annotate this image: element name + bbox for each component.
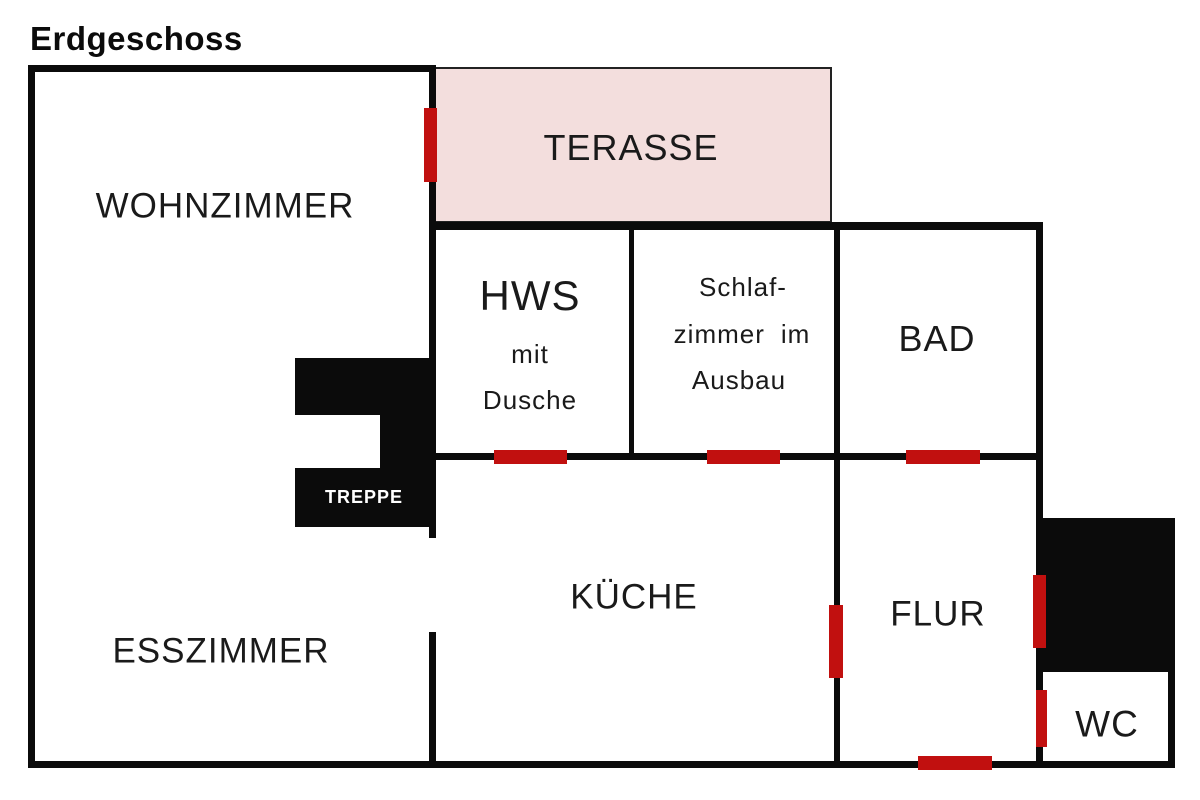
wall-hws-schlafzimmer (629, 222, 634, 460)
room-label-hws-line3: Dusche (483, 387, 577, 413)
wall-center-lower (429, 632, 436, 768)
door-entrance (918, 756, 992, 770)
wall-outer-top (28, 65, 436, 72)
room-label-wohnzimmer: WOHNZIMMER (96, 189, 355, 224)
wall-outer-right (1036, 222, 1043, 768)
room-label-schlafzimmer-line2: zimmer im (674, 321, 811, 347)
floor-plan: Erdgeschoss WOHNZIMMERTERASSEHWSmitDusch… (0, 0, 1200, 800)
room-label-terrasse: TERASSE (543, 130, 718, 166)
door-schlafzimmer (707, 450, 780, 464)
stair-block-top (295, 358, 429, 415)
room-label-schlafzimmer-line3: Ausbau (692, 367, 786, 393)
room-label-hws: HWS (480, 275, 581, 317)
room-label-bad: BAD (898, 321, 975, 357)
wall-outer-bottom (28, 761, 1175, 768)
door-hws (494, 450, 567, 464)
wall-outer-left (28, 65, 35, 768)
room-label-esszimmer: ESSZIMMER (112, 634, 329, 669)
stair-label: TREPPE (325, 488, 403, 506)
wall-row-top (429, 222, 1043, 230)
floor-title: Erdgeschoss (30, 20, 243, 58)
room-label-flur: FLUR (890, 597, 985, 632)
door-wohnzimmer-terrasse (424, 108, 437, 182)
storage-block (1043, 518, 1175, 672)
door-bad (906, 450, 980, 464)
room-label-schlafzimmer-line1: Schlaf- (699, 274, 787, 300)
wall-wc-right (1168, 672, 1175, 768)
room-label-kueche: KÜCHE (570, 580, 698, 615)
door-kueche-flur (829, 605, 843, 678)
stair-block-right (380, 415, 429, 468)
room-label-wc: WC (1075, 706, 1139, 743)
wall-schlafzimmer-bad-flur (834, 222, 840, 768)
door-flur-wc (1036, 690, 1047, 747)
door-flur-storage (1033, 575, 1046, 648)
room-label-hws-line2: mit (511, 341, 549, 367)
